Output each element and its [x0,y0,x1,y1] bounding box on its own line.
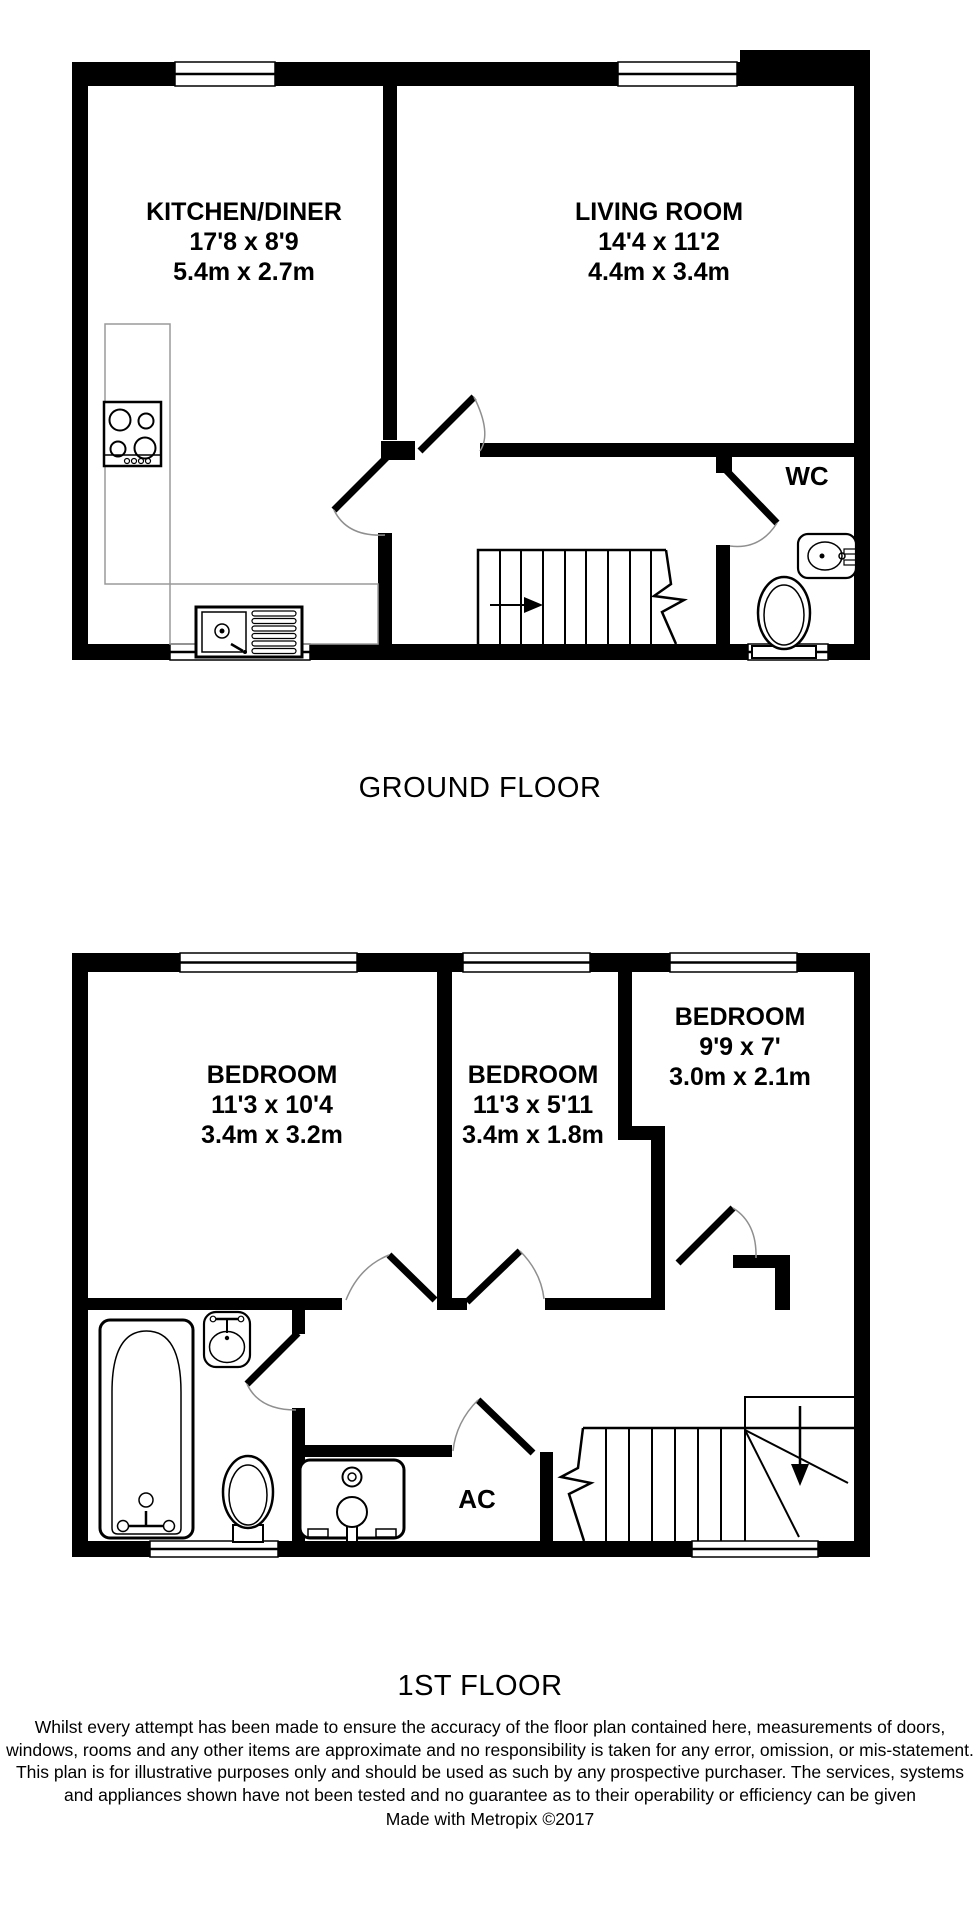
ff-window-bedroom1 [180,953,357,972]
basin-tap-handle [210,1316,216,1322]
ff-wall-bed2-bed3-jog [618,1126,665,1140]
room-dims-metric: 4.4m x 3.4m [575,257,743,287]
hob-icon [104,402,161,466]
ff-wall-ac-right [540,1452,553,1541]
ff-window-bedroom2 [463,953,590,972]
door-leaf [467,1251,520,1302]
ff-door-bedroom2 [467,1251,544,1302]
gf-wall-hall [480,443,854,457]
room-label-bedroom-1: BEDROOM 11'3 x 10'4 3.4m x 3.2m [201,1060,343,1150]
bathroom-basin-icon [204,1312,250,1367]
credit-text: Made with Metropix ©2017 [0,1808,980,1831]
ff-wall-bed2-post [452,1298,467,1310]
room-name: BEDROOM [669,1002,811,1032]
basin-drain [820,554,825,559]
room-dims-imperial: 11'3 x 10'4 [201,1090,343,1120]
stair-winder [745,1430,799,1537]
stair-arrow-head [791,1464,809,1486]
door-leaf [247,1333,298,1384]
basin-drain [225,1336,229,1340]
ff-wall-bed2-bottom [545,1298,663,1310]
gf-wall-top-step [740,50,870,64]
sink-knob [337,1497,367,1527]
floorplan-page: KITCHEN/DINER 17'8 x 8'9 5.4m x 2.7m LIV… [0,0,980,1912]
footer: Whilst every attempt has been made to en… [0,1716,980,1831]
ff-wall-bed2-bed3-lower [651,1140,665,1310]
gf-door-living [420,397,485,451]
door-leaf [420,397,474,451]
bath-tap-handle [164,1521,175,1532]
bath-icon [100,1320,193,1538]
ff-wall-right [854,953,870,1557]
room-label-bedroom-2: BEDROOM 11'3 x 5'11 3.4m x 1.8m [462,1060,604,1150]
door-leaf [723,467,777,523]
ff-wall-bed1-bed2 [437,972,452,1310]
door-leaf [678,1208,733,1263]
room-dims-metric: 3.0m x 2.1m [669,1062,811,1092]
room-name: BEDROOM [462,1060,604,1090]
ground-floor-plan [72,50,870,660]
door-swing-arc [334,510,385,535]
room-label-living-room: LIVING ROOM 14'4 x 11'2 4.4m x 3.4m [575,197,743,287]
first-floor-title: 1ST FLOOR [397,1670,562,1702]
ff-wall-left [72,953,88,1557]
room-name: KITCHEN/DINER [146,197,342,227]
room-name: BEDROOM [201,1060,343,1090]
ff-wall-bathroom-upper [292,1310,305,1334]
room-dims-metric: 3.4m x 3.2m [201,1120,343,1150]
room-dims-metric: 3.4m x 1.8m [462,1120,604,1150]
door-swing-arc [474,397,485,451]
bath-body [100,1320,193,1538]
room-dims-metric: 5.4m x 2.7m [146,257,342,287]
ff-window-stairs-bottom [692,1541,818,1557]
door-leaf [334,457,387,510]
ff-door-bedroom1 [346,1255,435,1300]
basin-tap-handle [238,1316,244,1322]
gf-wall-kitchen-stub [378,533,392,644]
ground-floor-title: GROUND FLOOR [359,772,602,804]
door-swing-arc [453,1400,478,1451]
room-dims-imperial: 14'4 x 11'2 [575,227,743,257]
ff-wall-bed2-bed3-upper [618,972,632,1133]
wc-basin-icon [798,534,856,578]
door-leaf [478,1400,533,1453]
ff-wall-bed3-stub [775,1255,790,1310]
ff-window-bedroom3 [670,953,797,972]
ff-door-ac [453,1400,533,1453]
sink-unit [196,607,302,657]
door-swing-arc [346,1255,389,1300]
gf-window-kitchen-top [175,62,275,86]
gf-window-living-top [618,62,737,86]
basin-body [798,534,856,578]
ff-window-bathroom-bottom [150,1541,278,1557]
stair-break-line [654,550,684,644]
disclaimer-text: Whilst every attempt has been made to en… [0,1716,980,1806]
room-name: LIVING ROOM [575,197,743,227]
bathroom-toilet-icon [223,1456,273,1542]
sink-drain-dot [220,629,225,634]
door-swing-arc [730,523,777,547]
stair-break-line [561,1428,591,1541]
room-label-bedroom-3: BEDROOM 9'9 x 7' 3.0m x 2.1m [669,1002,811,1092]
door-swing-arc [520,1251,544,1299]
gf-wall-wc-left [716,545,730,644]
ff-wall-ac-top [292,1445,452,1457]
ff-door-bedroom3 [678,1208,756,1263]
ff-stairs [561,1397,855,1541]
ac-sink-icon [300,1460,404,1542]
door-swing-arc [247,1384,296,1410]
stairs-outline [478,550,666,644]
room-label-wc: WC [785,463,828,489]
gf-wall-left [72,62,88,660]
gf-door-kitchen [334,457,387,535]
gf-wall-kitchen-living [383,86,397,440]
toilet-bowl [758,577,810,649]
gf-door-wc [723,467,777,547]
ff-wall-bed1-bottom [88,1298,342,1310]
kitchen-sink-icon [196,607,302,657]
room-label-kitchen-diner: KITCHEN/DINER 17'8 x 8'9 5.4m x 2.7m [146,197,342,287]
toilet-bowl [223,1456,273,1528]
sink-tap-dot [243,650,247,654]
wc-toilet-icon [752,577,816,658]
stair-arrow-head [524,597,543,613]
room-dims-imperial: 17'8 x 8'9 [146,227,342,257]
door-leaf [389,1255,435,1300]
bath-tap-handle [118,1521,129,1532]
ff-door-bathroom [247,1333,298,1410]
room-label-ac: AC [458,1486,496,1512]
room-dims-imperial: 11'3 x 5'11 [462,1090,604,1120]
room-dims-imperial: 9'9 x 7' [669,1032,811,1062]
gf-stairs [478,550,684,644]
door-swing-arc [733,1208,756,1258]
